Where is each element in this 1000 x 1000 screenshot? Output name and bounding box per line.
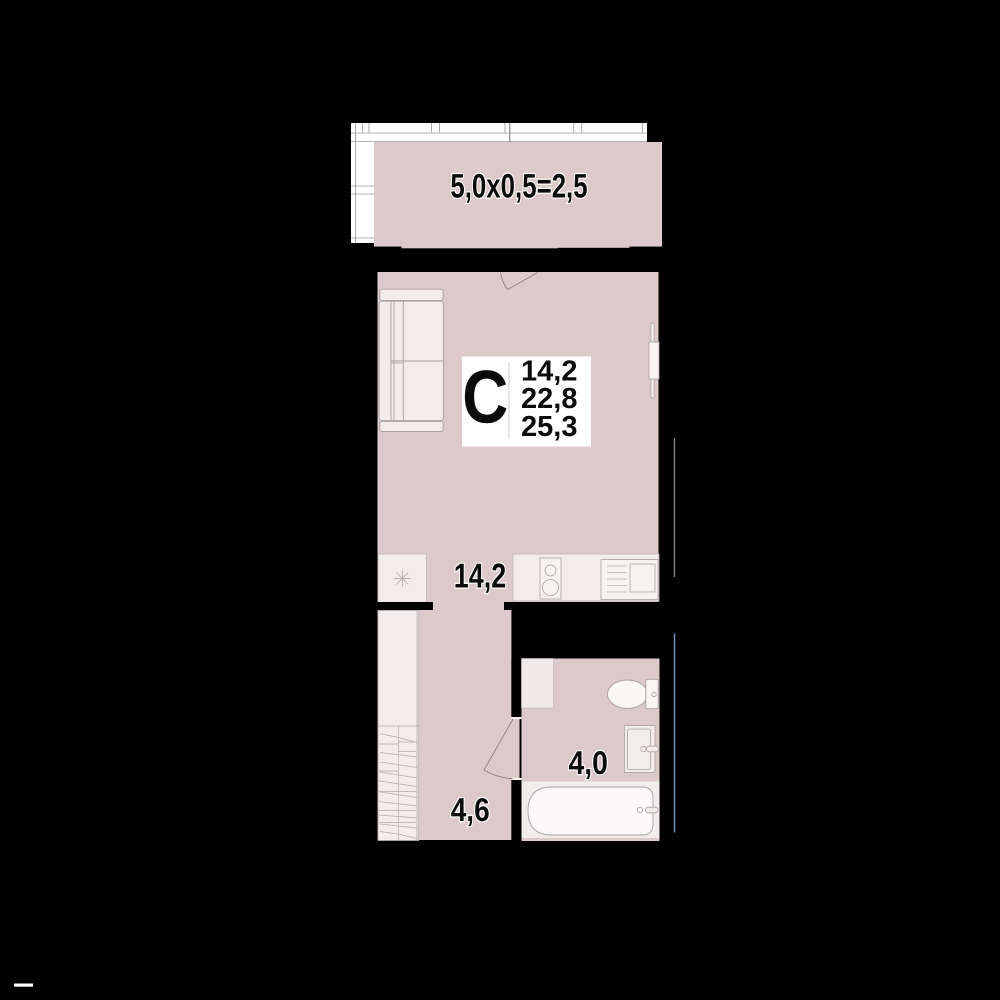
svg-text:4,6: 4,6	[451, 791, 490, 828]
svg-text:25,3: 25,3	[521, 411, 577, 443]
svg-text:5,0x0,5=2,5: 5,0x0,5=2,5	[450, 168, 587, 206]
svg-text:14,2: 14,2	[454, 558, 506, 596]
svg-text:4,0: 4,0	[568, 744, 607, 781]
svg-text:C: C	[462, 355, 508, 439]
